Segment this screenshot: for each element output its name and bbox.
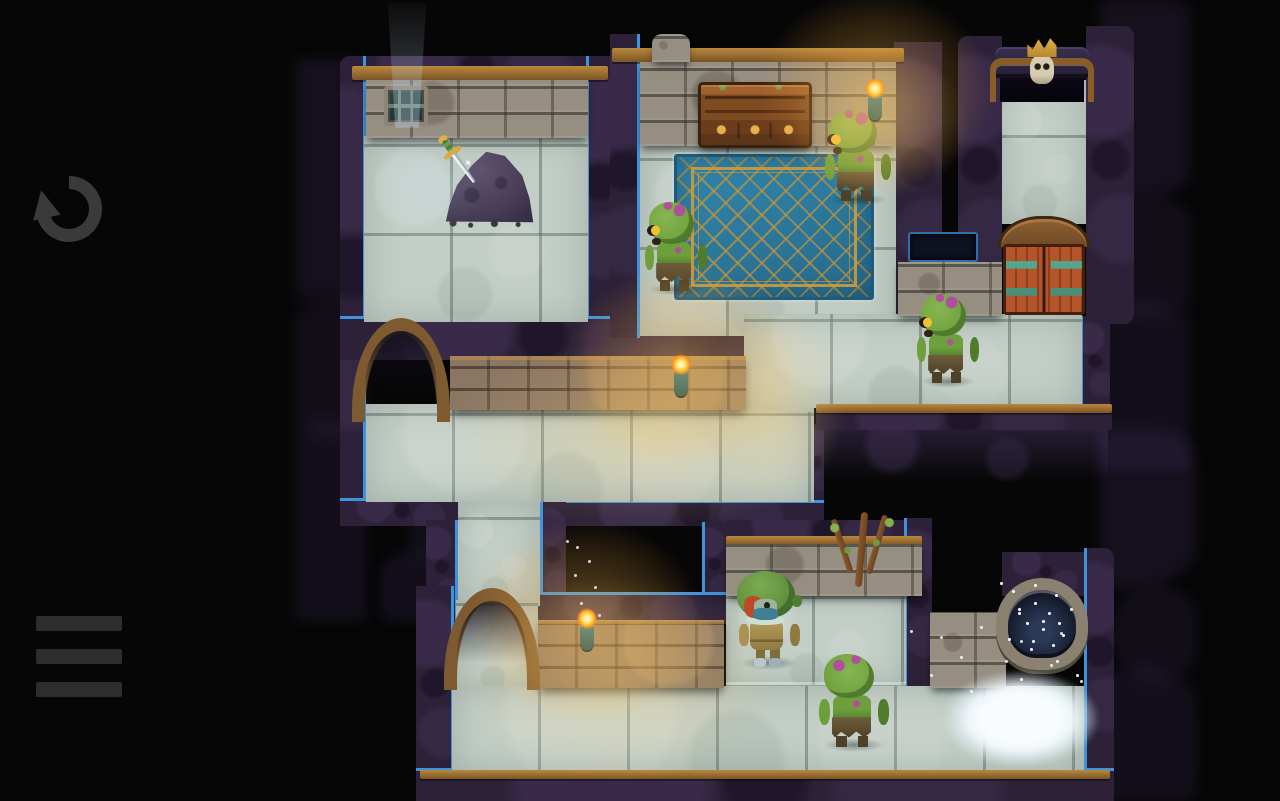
red-double-doors[interactable] xyxy=(998,216,1090,318)
wall-rugroom-left xyxy=(610,34,640,338)
darkstone-under-hall xyxy=(820,430,1108,482)
undo-arrowhead-icon xyxy=(27,187,60,220)
wall-torch-north xyxy=(858,62,892,126)
game-screen xyxy=(0,0,1280,801)
wall-easthall-right xyxy=(1080,316,1110,416)
zombie-rug-left[interactable] xyxy=(644,202,708,294)
skull-crowned-gate[interactable] xyxy=(990,36,1094,102)
well-sparkles xyxy=(1000,582,1090,694)
hooded-hero[interactable] xyxy=(736,570,802,668)
sword-in-rubble[interactable] xyxy=(452,126,502,190)
floor-east-hall[interactable] xyxy=(744,314,1082,408)
dungeon-map[interactable] xyxy=(0,0,1280,801)
brickwall-south xyxy=(538,620,724,688)
hamburger-menu-icon xyxy=(36,616,122,631)
hamburger-menu-icon xyxy=(36,682,122,697)
wall-niche xyxy=(908,232,978,262)
trim-easthall xyxy=(816,404,1112,413)
trim-topleft xyxy=(352,66,608,80)
zombie-south-room[interactable] xyxy=(818,654,890,750)
brickwall-mid xyxy=(450,356,746,410)
wooden-cabinet xyxy=(698,82,812,148)
withered-vine xyxy=(826,512,898,608)
wall-torch-mid xyxy=(664,338,698,402)
hamburger-menu-icon xyxy=(36,649,122,664)
wall-west xyxy=(340,56,366,526)
menu-button[interactable] xyxy=(36,616,122,700)
stone-block xyxy=(652,34,690,62)
barred-window xyxy=(384,86,428,126)
zombie-east-hall[interactable] xyxy=(916,294,980,386)
undo-button[interactable] xyxy=(32,174,136,274)
darkness-texture xyxy=(1100,430,1196,800)
dripping-sparkles xyxy=(566,540,614,620)
